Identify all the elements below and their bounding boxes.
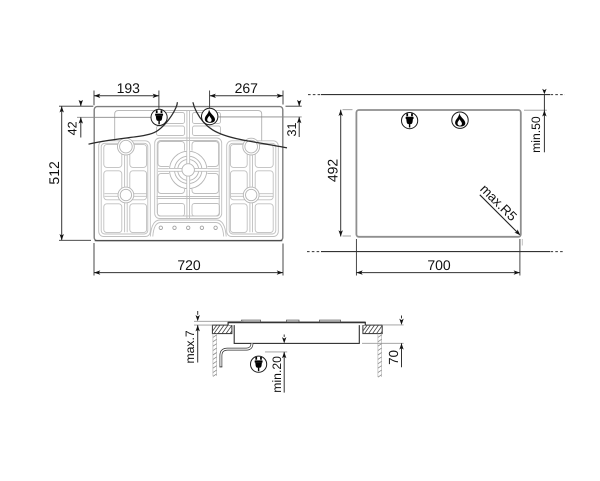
- svg-text:31: 31: [285, 122, 299, 136]
- svg-text:max.7: max.7: [183, 330, 197, 363]
- svg-text:70: 70: [386, 350, 401, 365]
- svg-text:492: 492: [324, 159, 340, 183]
- svg-text:min.20: min.20: [270, 356, 284, 393]
- svg-text:720: 720: [177, 257, 201, 273]
- svg-text:267: 267: [235, 80, 259, 96]
- svg-text:512: 512: [46, 161, 62, 185]
- svg-text:700: 700: [427, 257, 451, 273]
- svg-text:193: 193: [117, 80, 141, 96]
- svg-text:42: 42: [66, 121, 80, 135]
- svg-text:min.50: min.50: [529, 116, 543, 153]
